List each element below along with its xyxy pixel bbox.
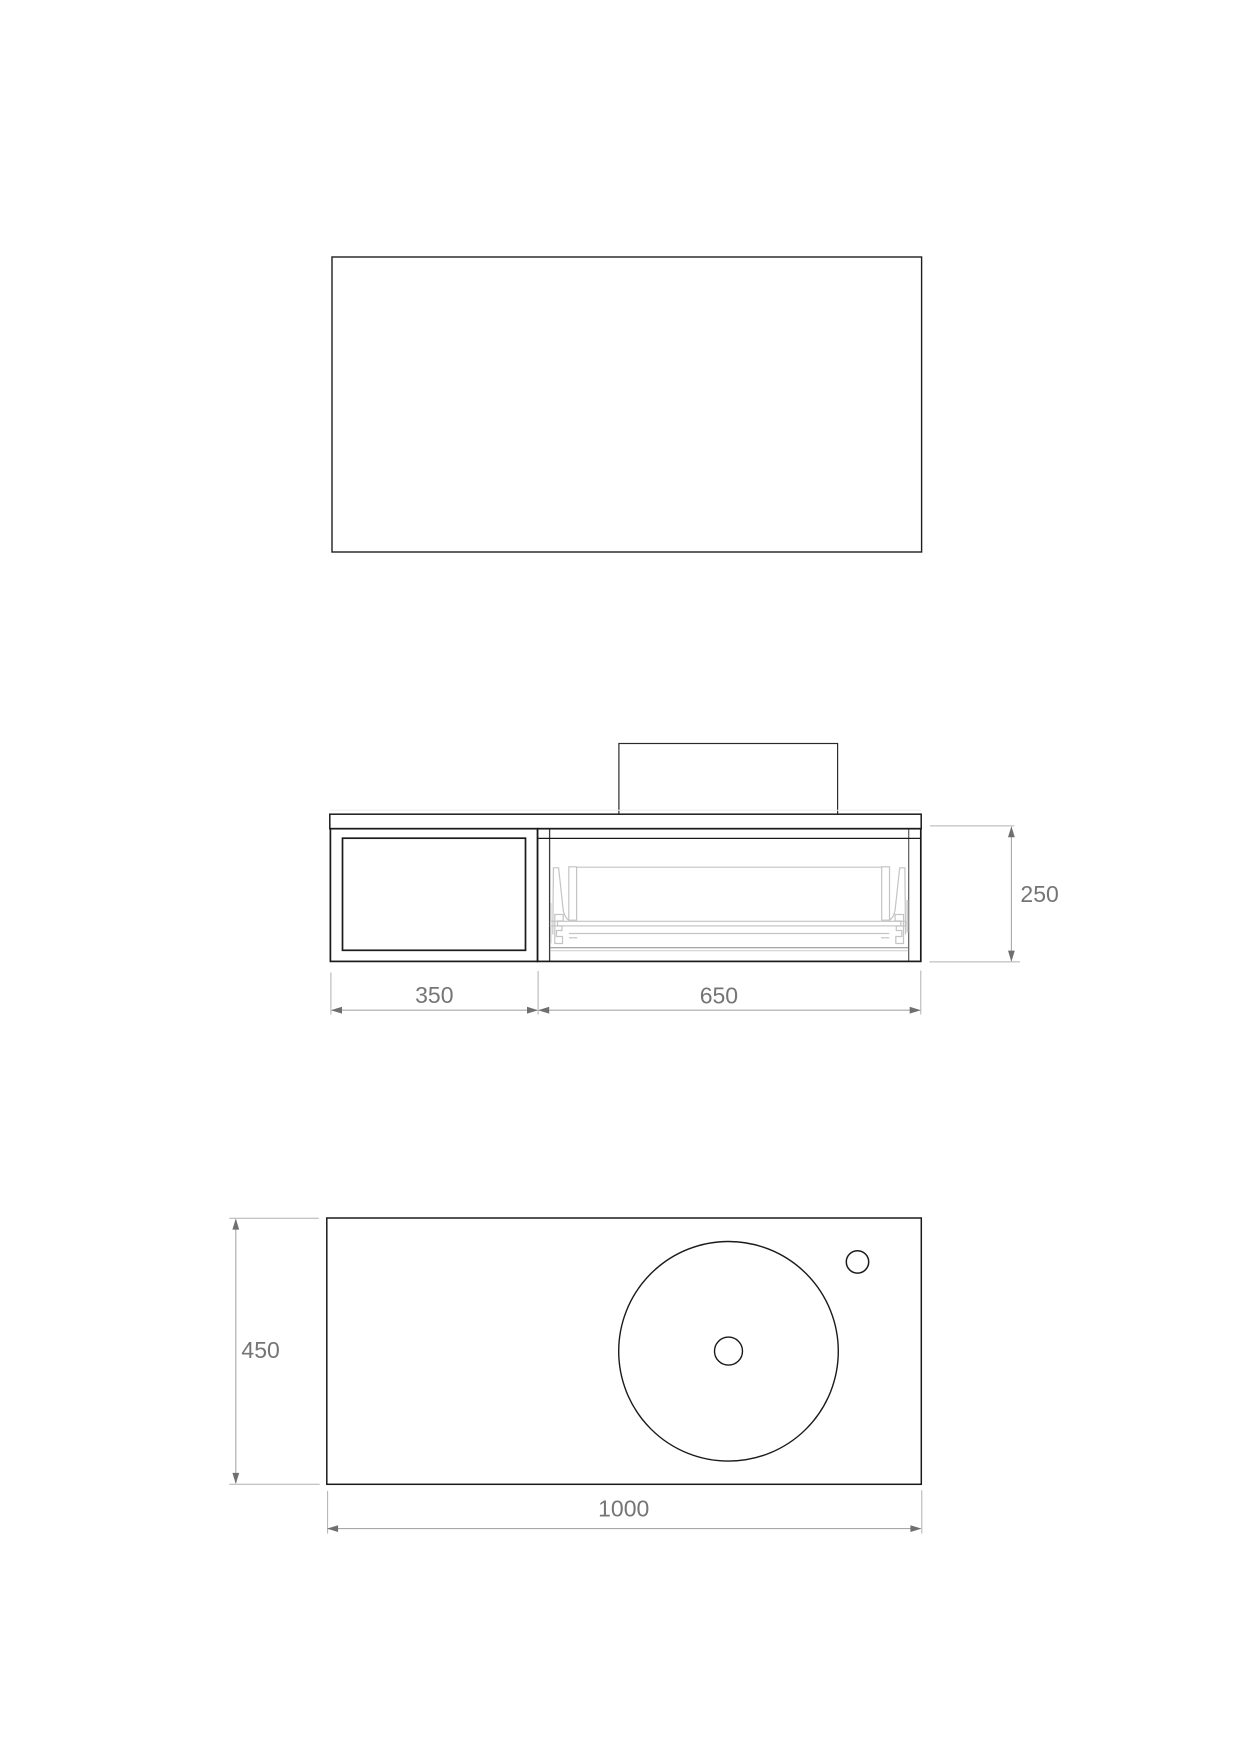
svg-text:350: 350	[415, 982, 453, 1008]
svg-text:250: 250	[1020, 881, 1058, 907]
svg-text:1000: 1000	[598, 1496, 649, 1522]
svg-text:450: 450	[241, 1337, 279, 1363]
svg-text:650: 650	[700, 982, 738, 1008]
